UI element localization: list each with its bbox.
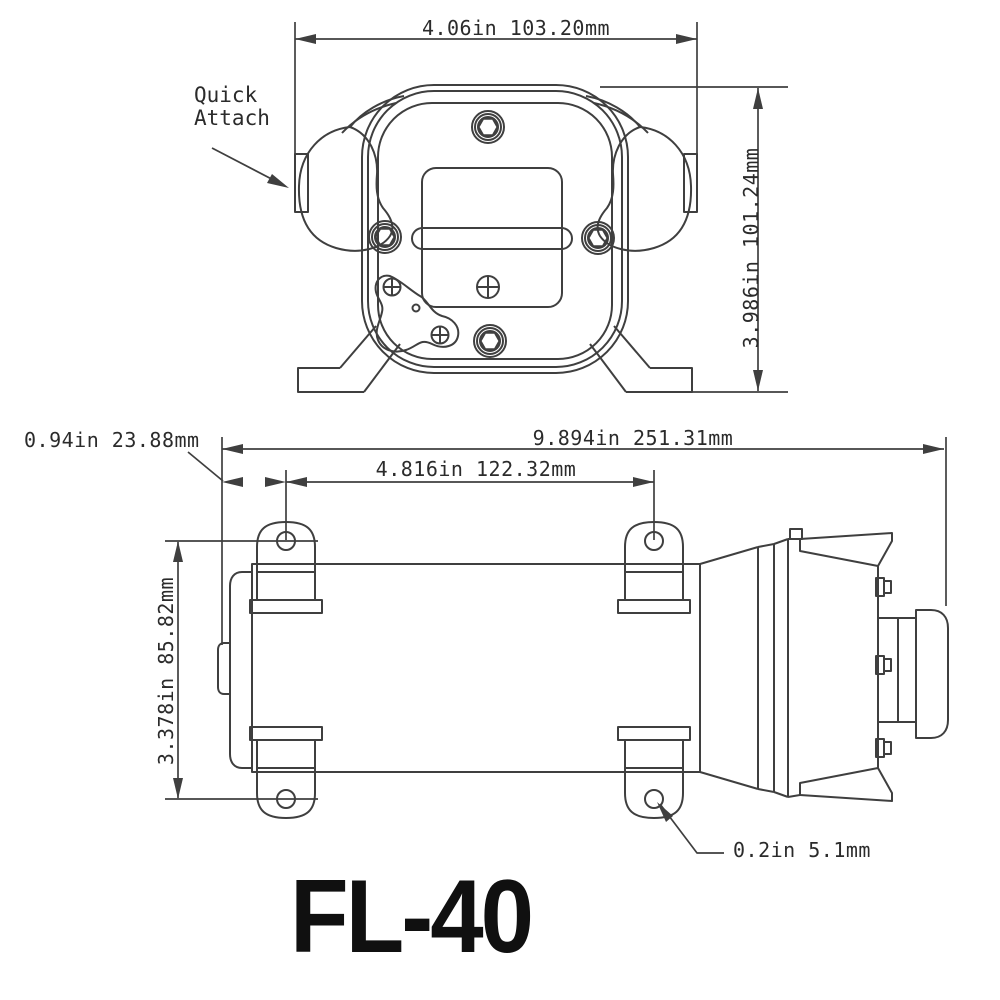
front-width-dimension-label: 4.06in 103.20mm — [346, 16, 686, 40]
dimension-arrow — [286, 477, 307, 487]
hole-diameter-leader — [657, 802, 724, 853]
side-hole-spacing-dimension-label: 4.816in 122.32mm — [306, 457, 646, 481]
dimension-arrow — [295, 34, 316, 44]
model-label: FL-40 — [290, 858, 531, 977]
right-foot — [590, 326, 692, 392]
quick-attach-callout: Quick Attach — [194, 84, 270, 130]
pump-head — [700, 529, 948, 801]
left-foot — [298, 326, 400, 392]
side-overall-length-dimension-label: 9.894in 251.31mm — [463, 426, 803, 450]
phillips-screw — [384, 279, 401, 296]
dimension-arrow — [923, 444, 944, 454]
phillips-screw — [432, 327, 449, 344]
front-height-dimension-label: 3.986in 101.24mm — [738, 88, 764, 408]
hex-bolt — [472, 111, 504, 143]
hex-bolt — [474, 325, 506, 357]
dimension-arrow — [222, 444, 243, 454]
left-attach-tab — [295, 154, 308, 212]
dimension-arrow — [222, 477, 243, 487]
dimension-arrow — [265, 477, 286, 487]
side-offset-dimension-label: 0.94in 23.88mm — [24, 428, 200, 452]
front-view-pump — [295, 85, 697, 392]
mount-hole — [645, 790, 663, 808]
side-view-pump — [218, 522, 948, 818]
outlet-port — [878, 610, 948, 738]
phillips-screw — [477, 276, 499, 298]
hex-bolt — [369, 221, 401, 253]
side-hole-diameter-dimension-label: 0.2in 5.1mm — [733, 838, 871, 862]
end-cap — [230, 572, 252, 768]
quick-attach-arrow — [212, 148, 289, 188]
side-height-dimension-label: 3.378in 85.82mm — [153, 511, 179, 831]
end-cap-tab — [218, 643, 230, 694]
pump-dimension-diagram: 4.06in 103.20mm Quick Attach 3.986in 101… — [0, 0, 1000, 1000]
